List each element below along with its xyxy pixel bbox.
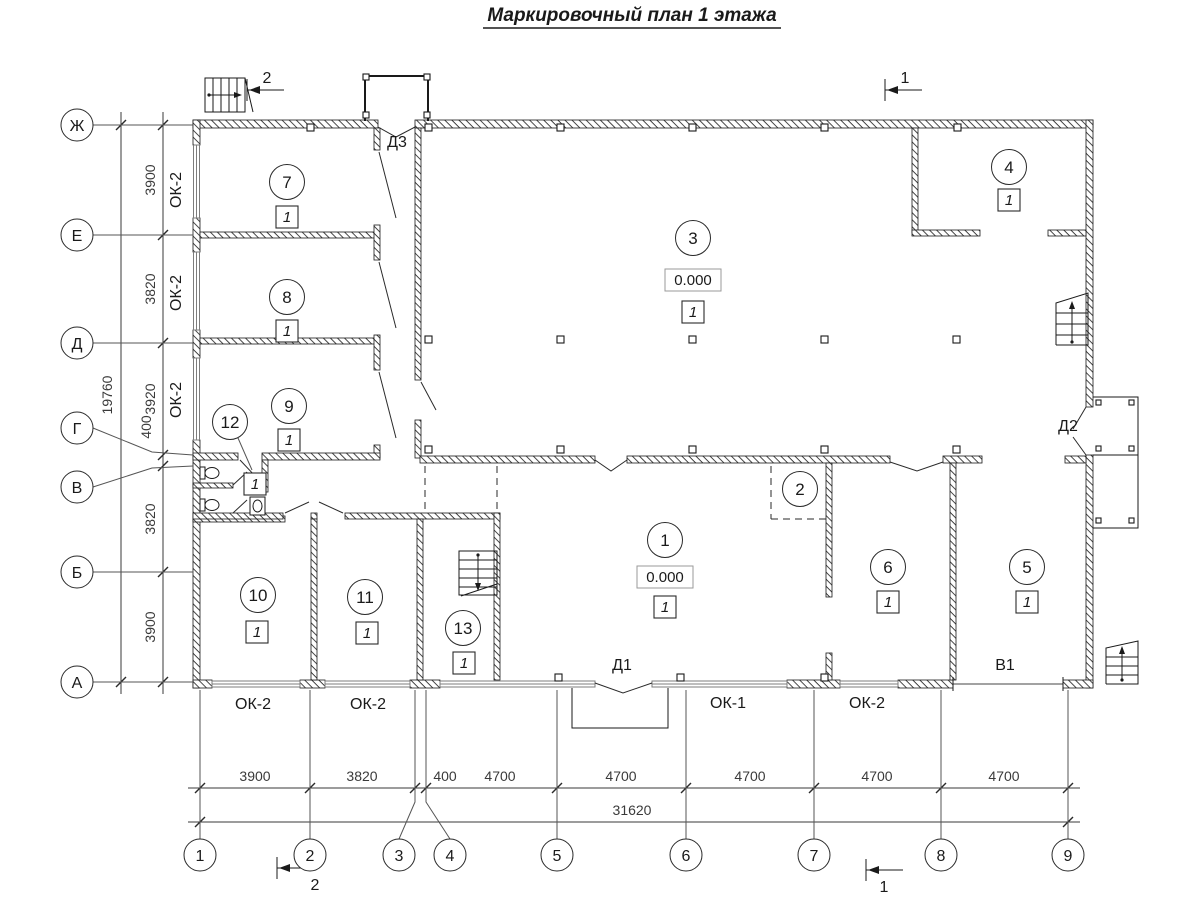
svg-text:4: 4 [446, 848, 455, 865]
dim-bottom-4: 4700 [484, 768, 515, 784]
dashed-partitions [425, 466, 828, 519]
window-bottom-4 [652, 681, 787, 687]
svg-text:1: 1 [253, 624, 261, 641]
columns [307, 124, 961, 681]
window-bottom-1 [212, 681, 300, 687]
svg-text:1: 1 [901, 70, 910, 87]
window-label-bottom-4: ОК-2 [849, 695, 885, 712]
room-12-mark: 12 1 [213, 405, 267, 496]
svg-text:6: 6 [883, 558, 892, 577]
dim-left-1: 3900 [142, 164, 158, 195]
gate-v1 [953, 677, 1063, 691]
svg-text:0.000: 0.000 [674, 272, 712, 289]
window-bottom-2 [325, 681, 410, 687]
window-label-left-3: ОК-2 [168, 382, 185, 418]
svg-text:5: 5 [1022, 558, 1031, 577]
axis-bottom-4: 4 [434, 839, 466, 871]
room-13-mark: 13 1 [446, 611, 481, 675]
axis-left-g: Г [61, 412, 93, 444]
axis-bottom-9: 9 [1052, 839, 1084, 871]
room-6-mark: 6 1 [871, 550, 906, 614]
svg-text:Ж: Ж [70, 118, 85, 135]
stair-exterior-bottom-right [1106, 641, 1138, 684]
section-2-top: 2 [247, 70, 284, 101]
door-d2-label: Д2 [1058, 418, 1078, 435]
dim-bottom-1: 3900 [239, 768, 270, 784]
room-8-mark: 8 1 [270, 280, 305, 343]
svg-text:11: 11 [356, 588, 374, 607]
porch-d1 [572, 688, 668, 728]
axis-left-b: Б [61, 556, 93, 588]
svg-text:1: 1 [363, 625, 371, 642]
window-label-left-2: ОК-2 [168, 275, 185, 311]
room-2-mark: 2 [783, 472, 818, 507]
toilet-icon-2 [200, 499, 219, 511]
window-bottom-3 [440, 681, 595, 687]
dim-bottom-3: 400 [433, 768, 457, 784]
svg-text:1: 1 [283, 323, 291, 340]
sink-icon [250, 497, 265, 515]
room-1-mark: 1 0.000 1 [637, 523, 693, 619]
dim-left-5: 3820 [142, 503, 158, 534]
room-10-mark: 10 1 [241, 578, 276, 644]
window-left-1 [194, 145, 200, 218]
axis-bottom-2: 2 [294, 839, 326, 871]
exterior-walls [193, 120, 1093, 688]
room-marks: 7 1 8 1 9 1 12 1 10 1 11 1 13 1 1 [213, 150, 1045, 675]
svg-text:8: 8 [282, 288, 291, 307]
stair-room13 [459, 551, 497, 596]
door-d1-label: Д1 [612, 657, 632, 674]
opening-labels: Д3 Д1 Д2 В1 ОК-2 ОК-2 ОК-2 ОК-2 ОК-2 ОК-… [168, 134, 1078, 713]
door-d3-label: Д3 [387, 134, 407, 151]
dim-left-4: 400 [138, 415, 154, 439]
page-title: Маркировочный план 1 этажа [487, 5, 777, 26]
svg-text:1: 1 [460, 655, 468, 672]
svg-text:4: 4 [1004, 158, 1013, 177]
room-11-mark: 11 1 [348, 580, 383, 645]
window-label-left-1: ОК-2 [168, 172, 185, 208]
axis-bottom-1: 1 [184, 839, 216, 871]
svg-text:1: 1 [251, 476, 259, 493]
svg-text:Б: Б [72, 565, 83, 582]
room-3-mark: 3 0.000 1 [665, 221, 721, 324]
svg-text:1: 1 [660, 531, 669, 550]
svg-text:2: 2 [263, 70, 272, 87]
svg-text:В: В [72, 480, 83, 497]
dim-bottom-8: 4700 [988, 768, 1019, 784]
svg-text:1: 1 [689, 304, 697, 321]
axis-left-e: Е [61, 219, 93, 251]
window-left-2 [194, 252, 200, 330]
room-7-mark: 7 1 [270, 165, 305, 229]
svg-text:2: 2 [306, 848, 315, 865]
svg-text:6: 6 [682, 848, 691, 865]
dim-left-3: 3920 [142, 383, 158, 414]
svg-text:3: 3 [395, 848, 404, 865]
svg-text:10: 10 [249, 586, 268, 605]
toilet-icon-1 [200, 467, 219, 479]
porch-d2 [1093, 397, 1138, 528]
window-bottom-5 [840, 681, 898, 687]
svg-text:Г: Г [73, 421, 82, 438]
axis-left-v: В [61, 471, 93, 503]
axis-marks: Ж Е Д Г В Б А 1 2 3 4 5 6 7 8 9 [61, 109, 1084, 871]
svg-text:7: 7 [282, 173, 291, 192]
axis-bottom-8: 8 [925, 839, 957, 871]
svg-text:Д: Д [72, 336, 83, 353]
svg-text:13: 13 [454, 619, 473, 638]
svg-text:1: 1 [884, 594, 892, 611]
dim-bottom-6: 4700 [734, 768, 765, 784]
dim-left-2: 3820 [142, 273, 158, 304]
svg-text:1: 1 [196, 848, 205, 865]
dim-bottom-total: 31620 [613, 802, 652, 818]
axis-left-a: А [61, 666, 93, 698]
gate-v1-label: В1 [995, 657, 1015, 674]
dim-bottom-7: 4700 [861, 768, 892, 784]
stair-interior-right [1056, 293, 1088, 345]
room-5-mark: 5 1 [1010, 550, 1045, 614]
svg-text:9: 9 [1064, 848, 1073, 865]
door-d1-leaf [595, 683, 652, 693]
window-left-3 [194, 358, 200, 440]
svg-text:9: 9 [284, 397, 293, 416]
svg-text:2: 2 [795, 480, 804, 499]
dim-left-6: 3900 [142, 611, 158, 642]
svg-text:5: 5 [553, 848, 562, 865]
room-4-mark: 4 1 [992, 150, 1027, 212]
svg-text:12: 12 [221, 413, 240, 432]
window-label-bottom-1: ОК-2 [235, 696, 271, 713]
floor-plan-page: Маркировочный план 1 этажа [0, 0, 1200, 900]
dimension-lines: 3900 3820 3920 400 3820 3900 19760 3900 … [99, 112, 1080, 827]
axis-left-d: Д [61, 327, 93, 359]
svg-text:1: 1 [1005, 192, 1013, 209]
svg-text:1: 1 [283, 209, 291, 226]
window-label-bottom-2: ОК-2 [350, 696, 386, 713]
dim-left-total: 19760 [99, 375, 115, 414]
dim-bottom-2: 3820 [346, 768, 377, 784]
window-label-bottom-3: ОК-1 [710, 695, 746, 712]
axis-bottom-7: 7 [798, 839, 830, 871]
section-1-bottom: 1 [866, 859, 903, 896]
stair-exterior-top-left [205, 78, 253, 112]
svg-text:1: 1 [661, 599, 669, 616]
svg-text:2: 2 [311, 877, 320, 894]
floor-plan-drawing: Маркировочный план 1 этажа [0, 0, 1200, 900]
svg-text:1: 1 [1023, 594, 1031, 611]
dim-bottom-5: 4700 [605, 768, 636, 784]
section-1-top: 1 [885, 70, 922, 101]
svg-text:0.000: 0.000 [646, 569, 684, 586]
svg-text:7: 7 [810, 848, 819, 865]
drawing-title: Маркировочный план 1 этажа [483, 5, 781, 28]
svg-text:Е: Е [72, 228, 83, 245]
axis-left-zh: Ж [61, 109, 93, 141]
axis-bottom-6: 6 [670, 839, 702, 871]
svg-text:1: 1 [880, 879, 889, 896]
svg-text:8: 8 [937, 848, 946, 865]
axis-bottom-5: 5 [541, 839, 573, 871]
room-9-mark: 9 1 [272, 389, 307, 452]
svg-text:А: А [72, 675, 83, 692]
vestibule-d3 [363, 74, 430, 121]
interior-walls [193, 128, 1086, 680]
axis-bottom-3: 3 [383, 839, 415, 871]
svg-text:1: 1 [285, 432, 293, 449]
svg-text:3: 3 [688, 229, 697, 248]
